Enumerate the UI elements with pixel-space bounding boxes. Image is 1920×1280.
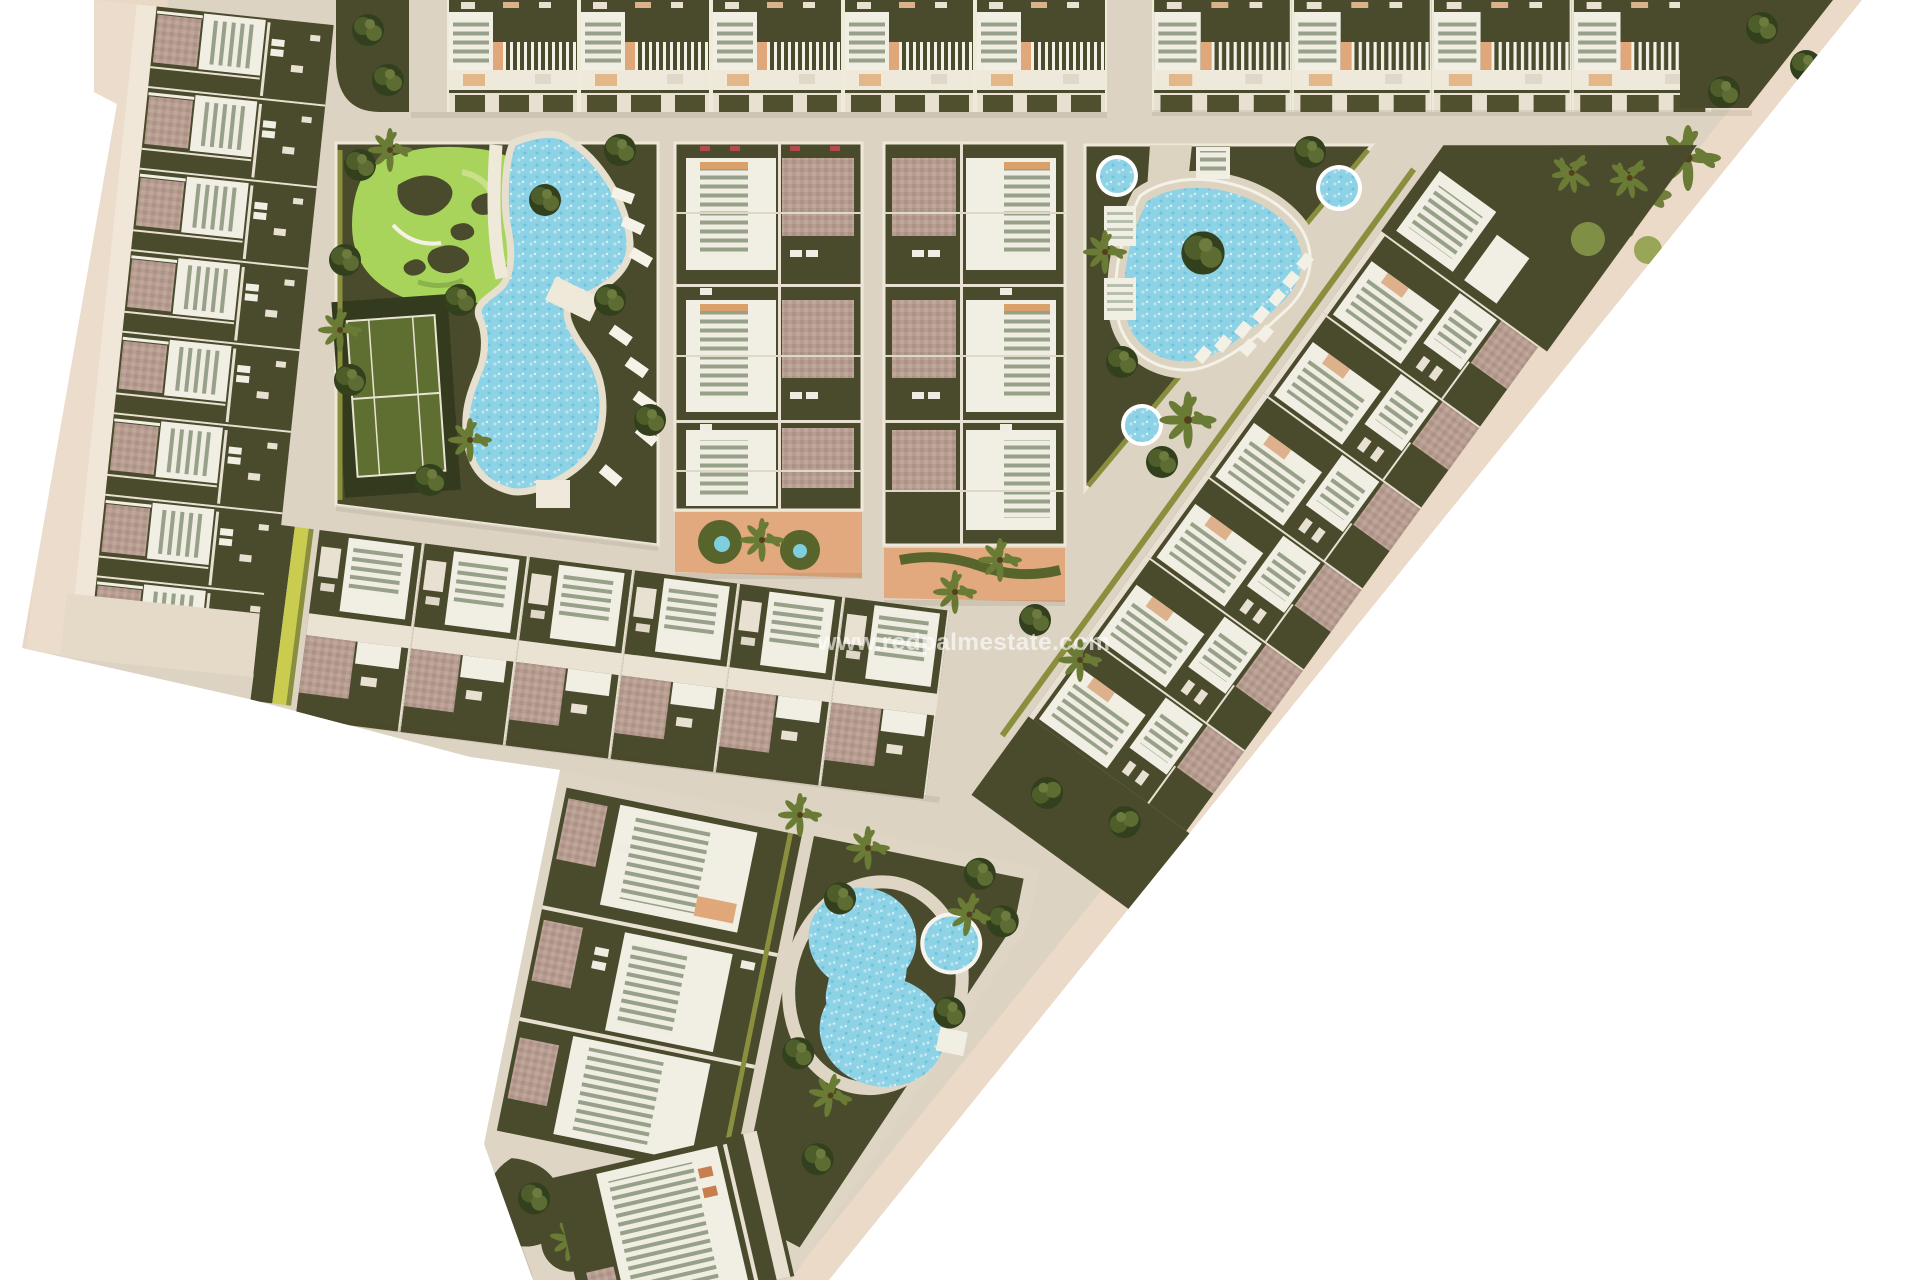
svg-text:www.redpalmestate.com: www.redpalmestate.com	[817, 629, 1111, 656]
